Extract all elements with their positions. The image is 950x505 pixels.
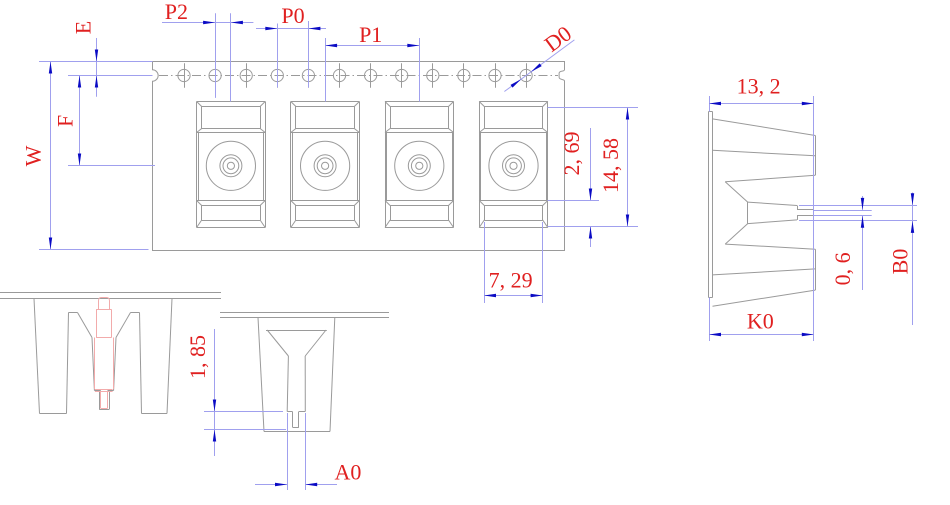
svg-text:14, 58: 14, 58 — [598, 138, 623, 193]
svg-text:7, 29: 7, 29 — [489, 267, 533, 292]
svg-text:B0: B0 — [888, 249, 913, 275]
svg-text:F: F — [53, 115, 78, 127]
svg-text:P2: P2 — [165, 0, 188, 24]
svg-text:2, 69: 2, 69 — [559, 132, 584, 176]
svg-text:P1: P1 — [359, 22, 382, 47]
svg-text:0, 6: 0, 6 — [830, 252, 855, 285]
svg-text:K0: K0 — [747, 309, 774, 334]
svg-text:13, 2: 13, 2 — [737, 74, 781, 99]
svg-text:P0: P0 — [281, 3, 304, 28]
svg-text:E: E — [70, 21, 95, 34]
svg-text:W: W — [21, 145, 46, 166]
svg-text:A0: A0 — [335, 460, 362, 485]
svg-text:1, 85: 1, 85 — [185, 335, 210, 379]
